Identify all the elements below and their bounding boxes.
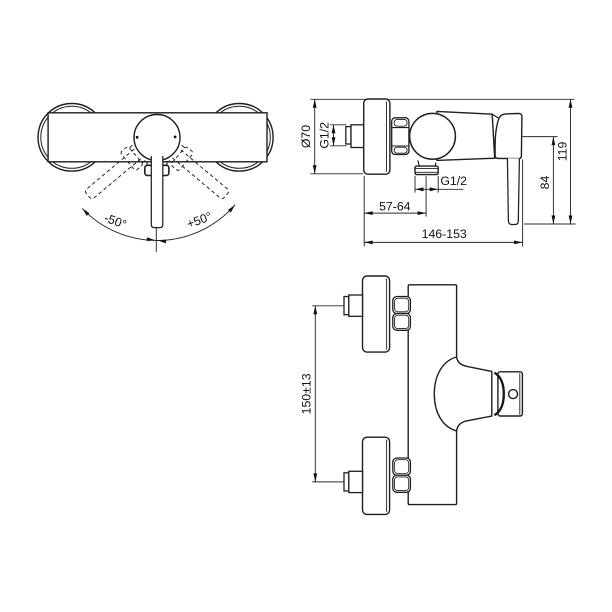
svg-text:119: 119 — [555, 142, 569, 162]
svg-text:146-153: 146-153 — [422, 227, 467, 241]
svg-text:G1/2: G1/2 — [318, 122, 332, 149]
svg-text:84: 84 — [538, 176, 552, 190]
svg-text:Ø70: Ø70 — [299, 125, 313, 148]
svg-text:G1/2: G1/2 — [440, 174, 467, 188]
svg-text:57-64: 57-64 — [379, 200, 411, 214]
svg-text:150±13: 150±13 — [299, 373, 313, 414]
